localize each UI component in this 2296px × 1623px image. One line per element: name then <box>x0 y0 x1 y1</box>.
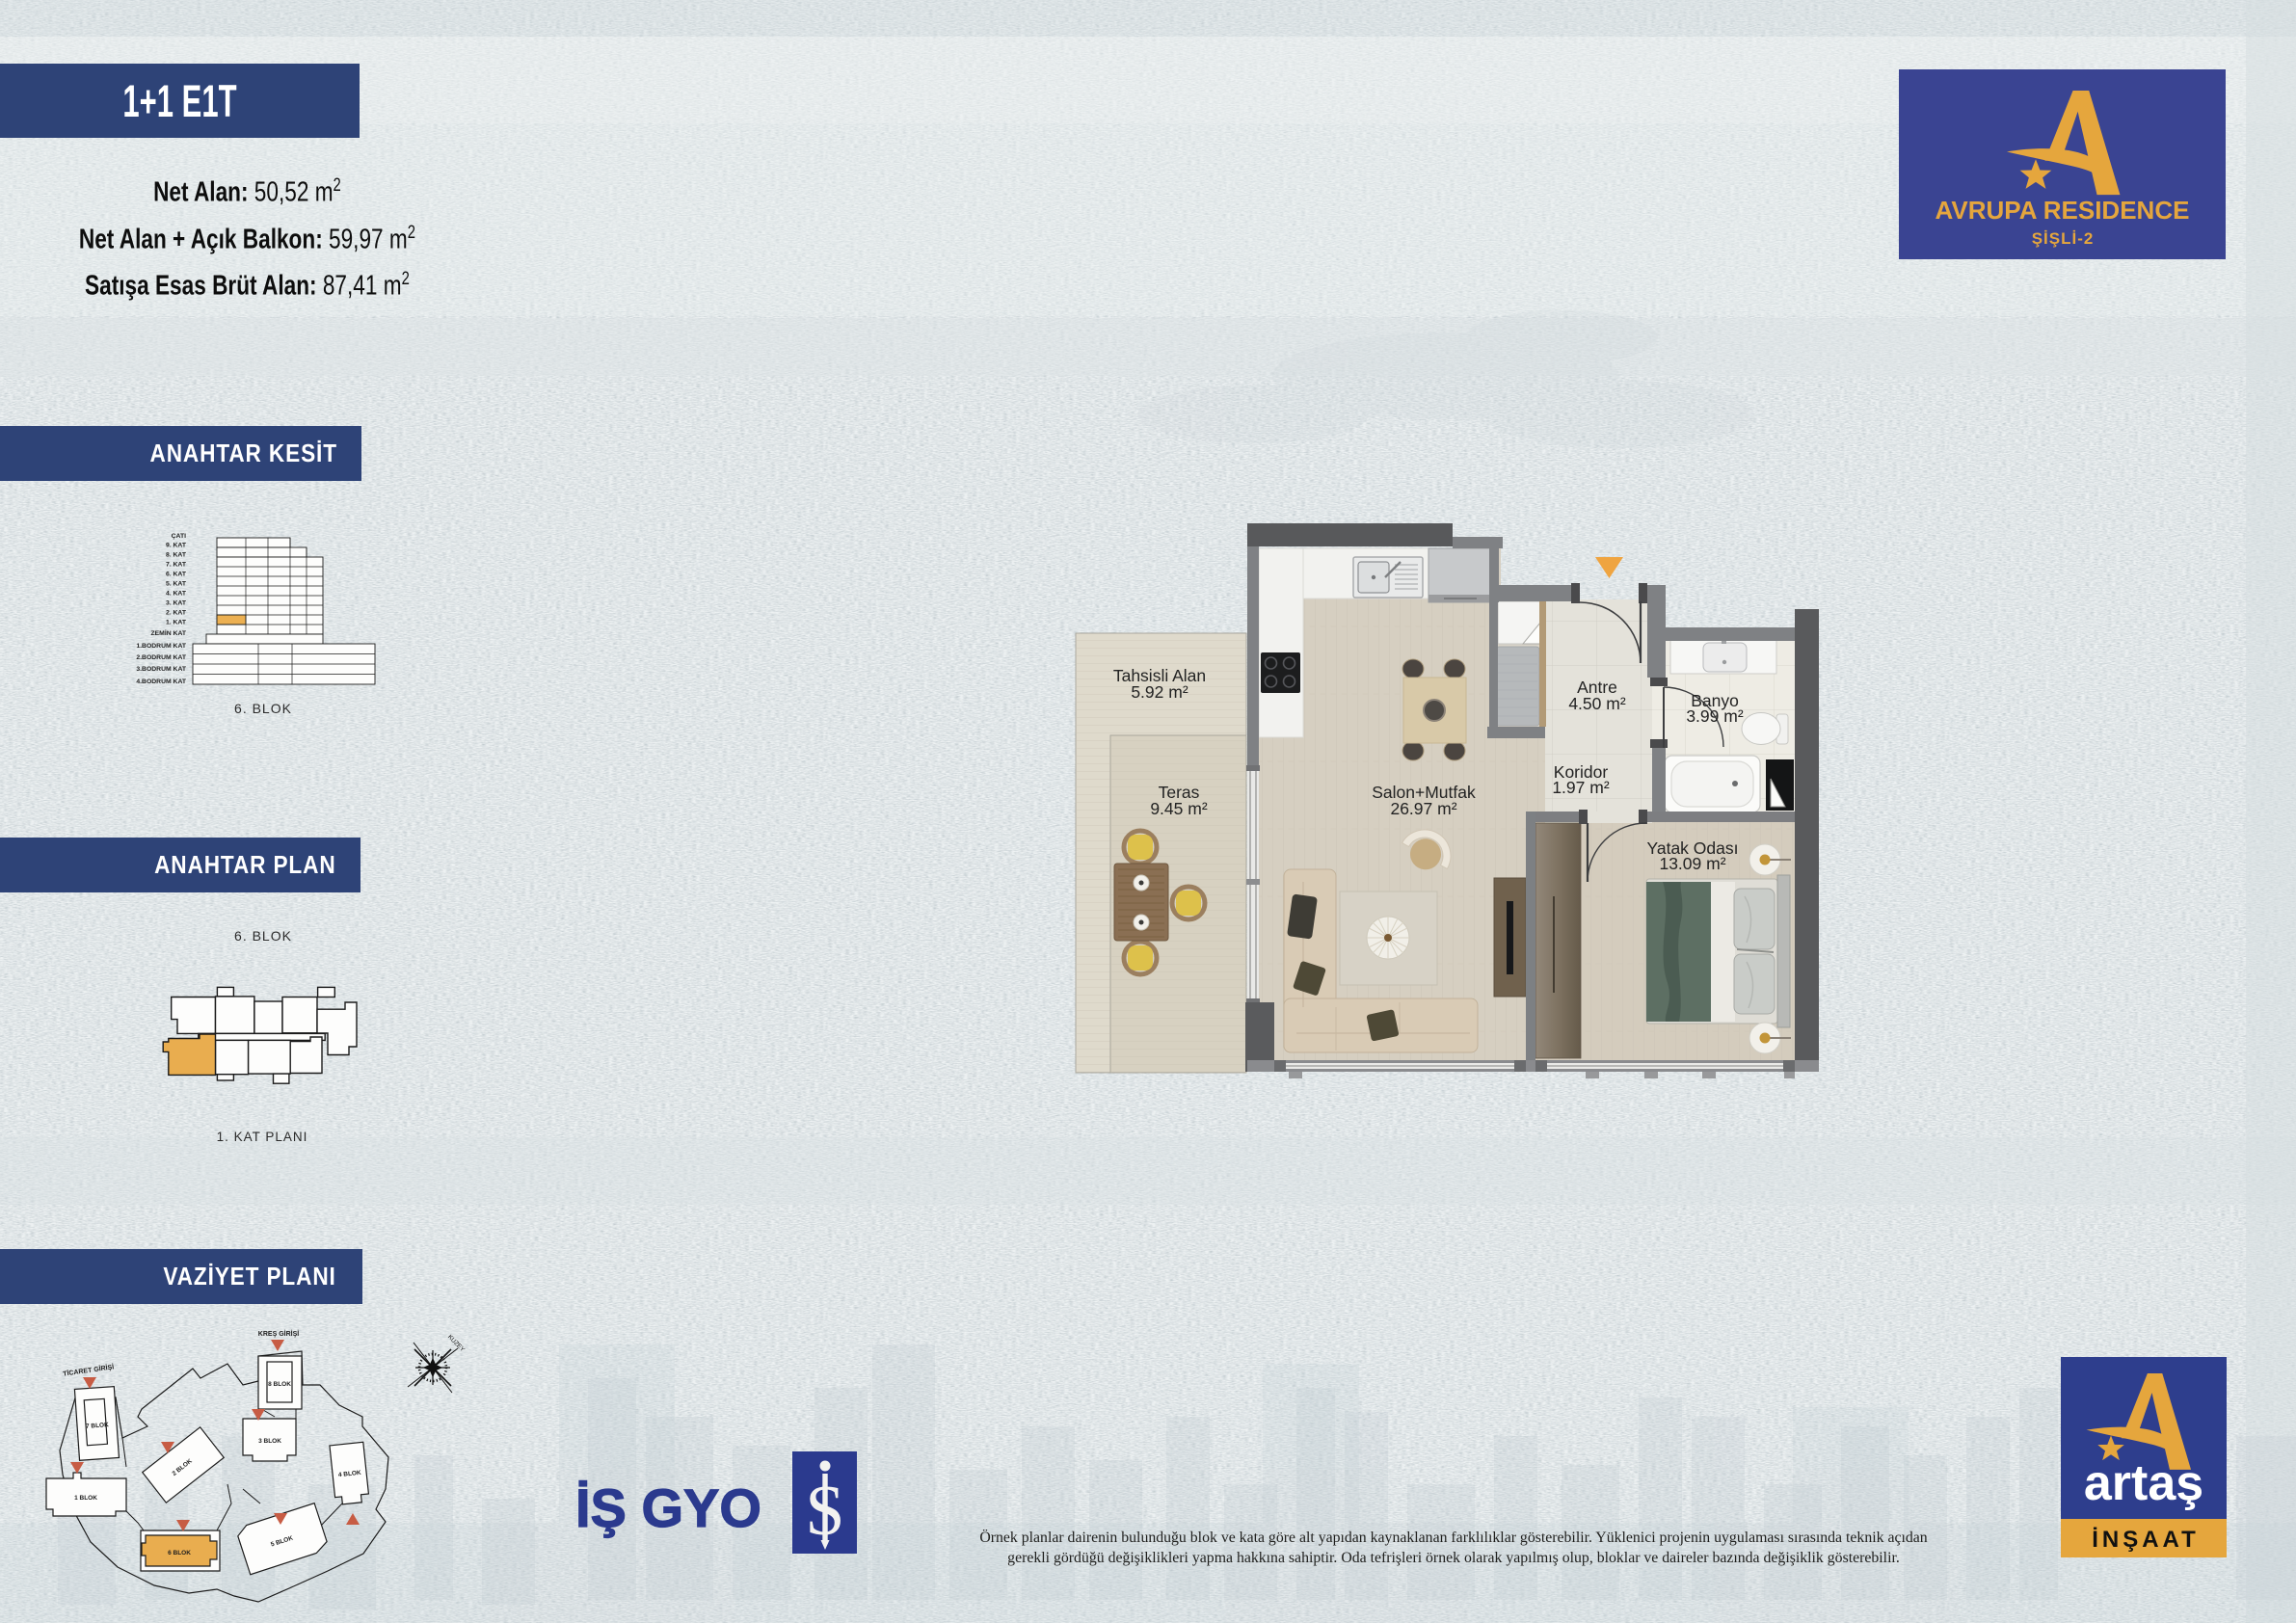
svg-text:4.50 m²: 4.50 m² <box>1568 694 1625 713</box>
svg-text:4. KAT: 4. KAT <box>166 591 187 598</box>
svg-text:İNŞAAT: İNŞAAT <box>2092 1527 2200 1553</box>
svg-text:9.45 m²: 9.45 m² <box>1150 799 1207 818</box>
svg-text:TİCARET GİRİŞİ: TİCARET GİRİŞİ <box>63 1363 115 1377</box>
svg-text:KREŞ GİRİŞİ: KREŞ GİRİŞİ <box>258 1330 299 1338</box>
svg-text:ZEMİN KAT: ZEMİN KAT <box>151 629 187 637</box>
svg-text:9. KAT: 9. KAT <box>166 543 187 549</box>
svg-text:5.92 m²: 5.92 m² <box>1131 682 1188 702</box>
svg-text:2.BODRUM KAT: 2.BODRUM KAT <box>136 654 186 661</box>
svg-text:8 BLOK: 8 BLOK <box>268 1381 291 1388</box>
svg-text:6. BLOK: 6. BLOK <box>234 701 292 716</box>
svg-text:7. KAT: 7. KAT <box>166 562 187 569</box>
svg-text:3.99 m²: 3.99 m² <box>1686 706 1743 726</box>
svg-text:ÇATI: ÇATI <box>172 533 186 540</box>
svg-text:AVRUPA RESIDENCE: AVRUPA RESIDENCE <box>1936 196 2190 225</box>
svg-text:1.97 m²: 1.97 m² <box>1552 778 1609 797</box>
svg-text:1.BODRUM KAT: 1.BODRUM KAT <box>136 643 186 650</box>
svg-text:6. KAT: 6. KAT <box>166 572 187 578</box>
svg-text:13.09 m²: 13.09 m² <box>1659 854 1725 873</box>
svg-text:4.BODRUM KAT: 4.BODRUM KAT <box>136 678 186 685</box>
svg-text:3 BLOK: 3 BLOK <box>258 1438 281 1445</box>
svg-text:3. KAT: 3. KAT <box>166 600 187 607</box>
svg-text:ŞİŞLİ-2: ŞİŞLİ-2 <box>2032 229 2095 248</box>
svg-text:artaş: artaş <box>2084 1455 2203 1511</box>
svg-text:1 BLOK: 1 BLOK <box>74 1495 97 1502</box>
svg-text:2. KAT: 2. KAT <box>166 610 187 617</box>
svg-text:1. KAT PLANI: 1. KAT PLANI <box>217 1130 308 1144</box>
svg-text:5. KAT: 5. KAT <box>166 581 187 588</box>
svg-text:3.BODRUM KAT: 3.BODRUM KAT <box>136 666 186 673</box>
svg-text:6. BLOK: 6. BLOK <box>234 928 292 944</box>
svg-text:1. KAT: 1. KAT <box>166 620 187 626</box>
svg-text:6 BLOK: 6 BLOK <box>168 1550 191 1556</box>
svg-text:26.97 m²: 26.97 m² <box>1390 799 1456 818</box>
svg-text:8. KAT: 8. KAT <box>166 552 187 559</box>
